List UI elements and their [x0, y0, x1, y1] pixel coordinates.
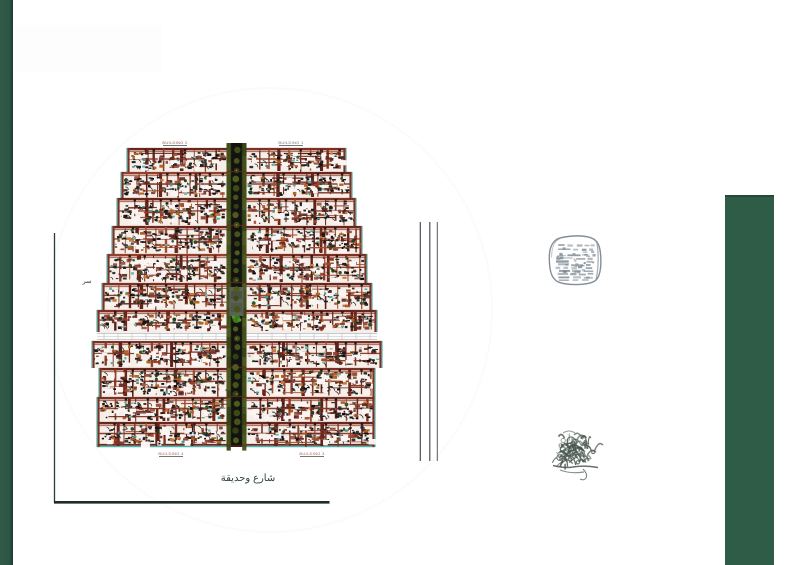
- svg-text:BUILDING 3: BUILDING 3: [299, 451, 325, 456]
- svg-text:سر: سر: [81, 278, 92, 285]
- svg-text:BUILDING 1: BUILDING 1: [278, 140, 304, 145]
- svg-text:BUILDING 2: BUILDING 2: [162, 140, 188, 145]
- svg-text:شارع وحديقة: شارع وحديقة: [221, 473, 275, 484]
- svg-text:BUILDING 4: BUILDING 4: [158, 451, 184, 456]
